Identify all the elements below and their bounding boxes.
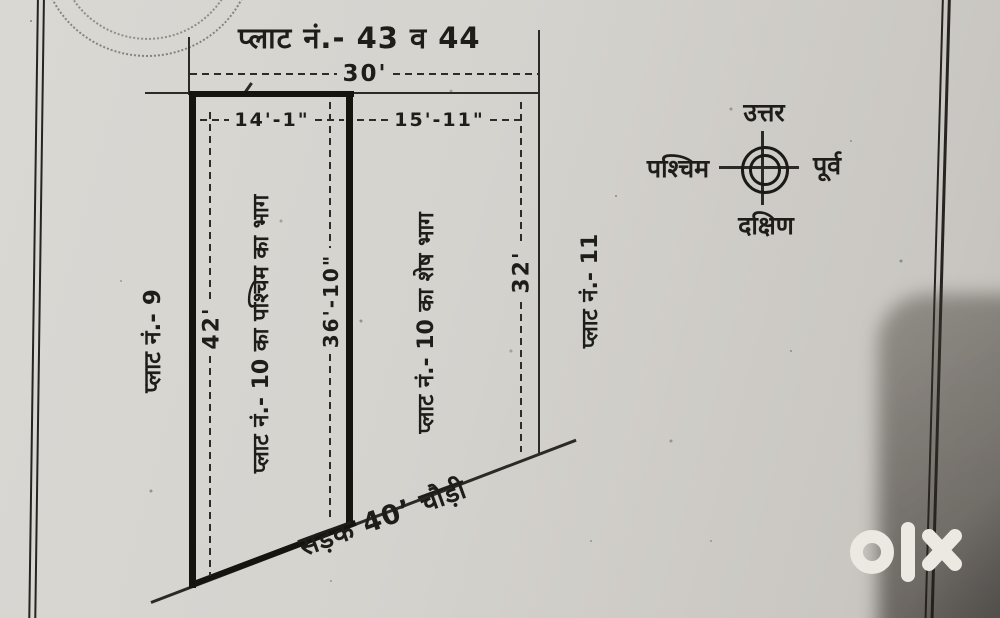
dimension-remaining-part-width: 15'-11" [357,107,522,133]
dimension-36-line-upper [329,102,331,248]
scanned-plot-map: प्लाट नं.- 43 व 44 30' 14'-1" 15'-11" 42… [0,0,1000,618]
boundary-left-tick [188,37,190,95]
compass-west-label: पश्चिम [647,151,709,185]
dimension-west-part-width: 14'-1" [200,107,344,133]
plot-10-remaining-part-label: प्लाट नं.- 10 का शेष भाग [410,212,440,433]
plot-11-label: प्लाट नं.- 11 [574,234,604,349]
bold-plot-right-edge [346,91,353,527]
dimension-42-line-lower [209,356,211,576]
dimension-remaining-part-value: 15'-11" [394,109,484,131]
compass-north-label: उत्तर [743,95,784,129]
plot-title-label: प्लाट नं.- 43 व 44 [238,18,481,57]
dimension-32-line-upper [520,102,522,243]
compass-east-label: पूर्व [813,148,841,182]
boundary-right-line [538,30,540,453]
compass-south-label: दक्षिण [738,208,794,242]
dimension-32-line-lower [520,302,522,452]
dimension-left-side-value: 42' [200,306,225,349]
paper-speckles [30,20,32,22]
plot-10-west-part-label: प्लाट नं.- 10 का पश्चिम का भाग [245,195,275,474]
olx-logo-icon [845,521,970,585]
dimension-42-line-upper [209,112,211,300]
plot-9-label: प्लाट नं.- 9 [135,289,167,393]
dimension-west-side-value: 36'-10" [319,254,343,349]
road-label: सड़क 40’ चौड़ी [294,469,472,564]
page-border-left [28,0,47,618]
dimension-36-line-lower [329,354,331,520]
bold-plot-left-edge [189,91,196,588]
bold-plot-top-edge [191,91,354,97]
dimension-total-width-value: 30' [342,61,387,87]
compass-inner-circle-icon [749,154,781,186]
photo-shadow-corner [860,420,1000,618]
dimension-right-side-value: 32' [510,250,535,293]
dimension-total-width: 30' [190,61,540,87]
dimension-west-part-value: 14'-1" [234,109,309,131]
